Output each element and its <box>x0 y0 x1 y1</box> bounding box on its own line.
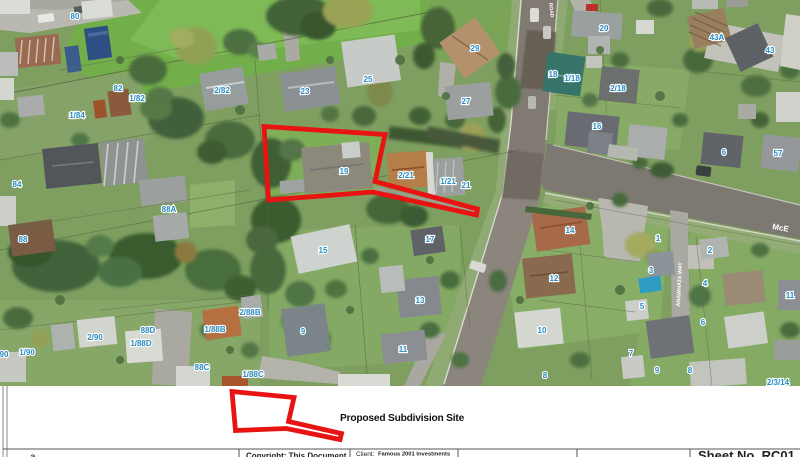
svg-text:1/88C: 1/88C <box>242 370 264 379</box>
svg-text:a: a <box>30 452 36 457</box>
svg-text:9: 9 <box>655 366 660 375</box>
svg-text:17: 17 <box>426 235 435 244</box>
svg-text:9: 9 <box>301 327 306 336</box>
svg-text:8: 8 <box>543 371 548 380</box>
svg-text:11: 11 <box>786 291 795 300</box>
svg-text:88C: 88C <box>195 363 210 372</box>
svg-text:1/90: 1/90 <box>19 348 35 357</box>
svg-text:84: 84 <box>13 180 22 189</box>
svg-text:Client:: Client: <box>356 451 375 457</box>
svg-text:1/84: 1/84 <box>69 111 85 120</box>
svg-text:6: 6 <box>722 148 727 157</box>
svg-text:82: 82 <box>114 84 123 93</box>
svg-text:10: 10 <box>538 326 547 335</box>
svg-text:13: 13 <box>416 296 425 305</box>
svg-text:11: 11 <box>399 345 408 354</box>
svg-text:4: 4 <box>703 279 708 288</box>
svg-text:27: 27 <box>462 97 471 106</box>
svg-text:18: 18 <box>549 70 558 79</box>
svg-text:1/88D: 1/88D <box>130 339 152 348</box>
svg-text:5: 5 <box>640 302 645 311</box>
svg-text:2/88B: 2/88B <box>239 308 261 317</box>
svg-text:2/21: 2/21 <box>398 171 414 180</box>
svg-text:43: 43 <box>766 46 775 55</box>
svg-text:15: 15 <box>319 246 328 255</box>
svg-text:Proposed Subdivision Site: Proposed Subdivision Site <box>340 413 465 424</box>
svg-text:19: 19 <box>340 167 349 176</box>
svg-text:1/21: 1/21 <box>440 177 456 186</box>
svg-text:1/18: 1/18 <box>564 74 580 83</box>
svg-text:8: 8 <box>688 366 693 375</box>
svg-text:2/90: 2/90 <box>87 333 103 342</box>
svg-text:Famous 2001 Investments: Famous 2001 Investments <box>378 452 450 457</box>
svg-text:Sheet No. RC01: Sheet No. RC01 <box>698 448 795 457</box>
svg-text:2/18: 2/18 <box>610 84 626 93</box>
svg-text:7: 7 <box>629 349 634 358</box>
svg-text:21: 21 <box>462 181 471 190</box>
svg-text:88D: 88D <box>141 326 156 335</box>
svg-text:80: 80 <box>71 12 80 21</box>
svg-text:57: 57 <box>774 149 783 158</box>
svg-text:1/82: 1/82 <box>129 94 145 103</box>
svg-text:20: 20 <box>600 24 609 33</box>
svg-text:14: 14 <box>566 226 575 235</box>
svg-text:6: 6 <box>701 318 706 327</box>
svg-text:1: 1 <box>656 234 661 243</box>
svg-text:29: 29 <box>471 44 480 53</box>
svg-text:1/88B: 1/88B <box>204 325 226 334</box>
svg-text:25: 25 <box>364 75 373 84</box>
svg-text:2/3/14: 2/3/14 <box>767 378 790 387</box>
svg-text:88A: 88A <box>162 205 177 214</box>
svg-text:3: 3 <box>649 266 654 275</box>
svg-text:90: 90 <box>0 350 9 359</box>
svg-text:2: 2 <box>708 246 713 255</box>
svg-text:43A: 43A <box>710 33 725 42</box>
svg-text:Copyright: This Document: Copyright: This Document <box>246 452 347 457</box>
svg-text:2/82: 2/82 <box>214 86 230 95</box>
svg-text:88: 88 <box>19 235 28 244</box>
svg-text:12: 12 <box>550 274 559 283</box>
svg-text:23: 23 <box>301 87 310 96</box>
svg-text:16: 16 <box>593 122 602 131</box>
